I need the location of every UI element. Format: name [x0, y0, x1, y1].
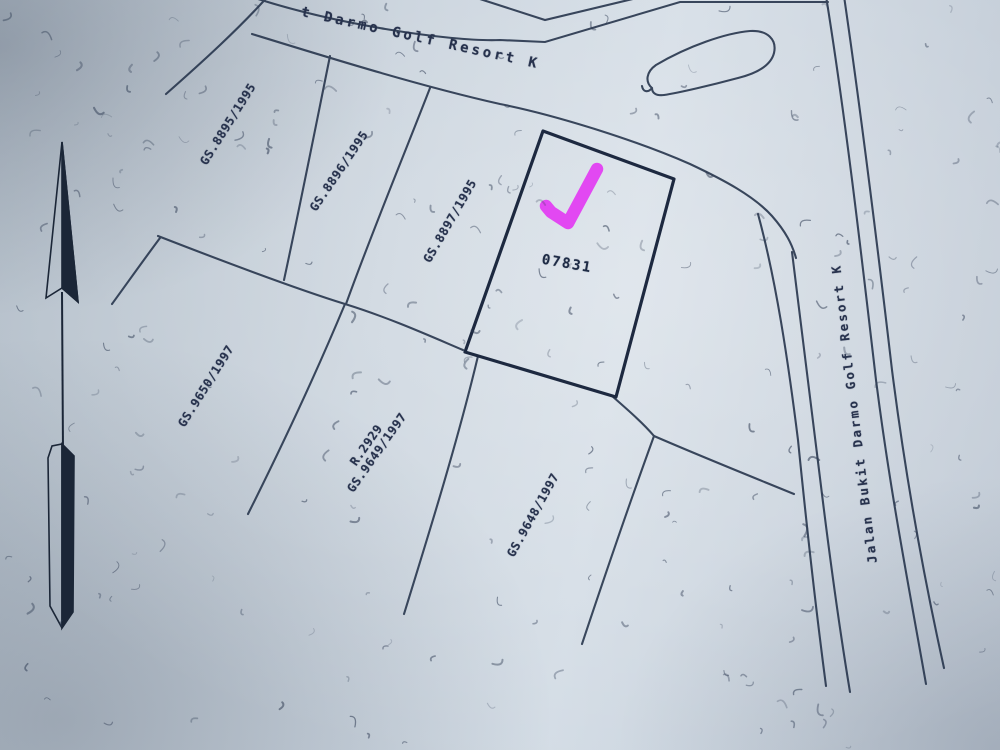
- parcel-boundary-left-branch: [112, 238, 160, 304]
- right-road-outer-edge-b: [844, 0, 944, 668]
- north-arrow-icon: [46, 142, 78, 628]
- divider-9650-9649: [248, 304, 345, 514]
- divider-9648-east: [582, 436, 654, 644]
- culdesac-island: [642, 31, 775, 95]
- parcel-baseline-mid: [612, 396, 654, 436]
- north-arrow-tail-outline: [48, 444, 62, 628]
- divider-9649-9648: [404, 356, 478, 614]
- parcel-baseline-east: [654, 436, 794, 494]
- north-arrow-shaft: [62, 292, 63, 452]
- north-arrow-head-fill: [62, 142, 78, 302]
- parcel-baseline-west: [158, 236, 463, 350]
- checkmark-annotation-icon: [546, 169, 597, 223]
- divider-8895-8896: [284, 56, 330, 280]
- cadastral-map-photo: t Darmo Golf Resort K Jalan Bukit Darmo …: [0, 0, 1000, 750]
- north-arrow-tail-fill: [62, 444, 74, 628]
